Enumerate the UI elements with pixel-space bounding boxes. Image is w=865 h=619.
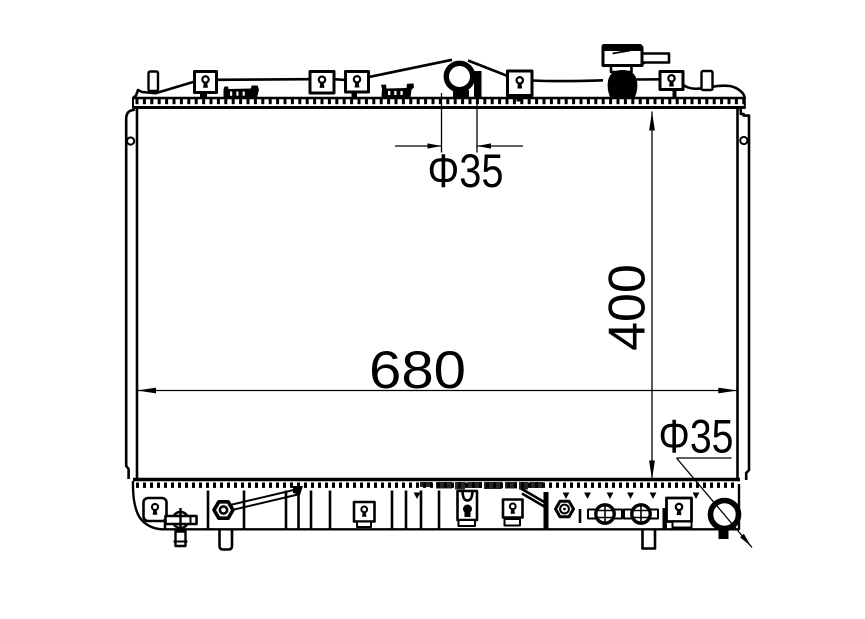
svg-text:Φ35: Φ35 xyxy=(428,144,504,197)
svg-text:Φ35: Φ35 xyxy=(659,410,734,463)
svg-text:400: 400 xyxy=(599,264,657,351)
svg-text:680: 680 xyxy=(369,341,466,400)
